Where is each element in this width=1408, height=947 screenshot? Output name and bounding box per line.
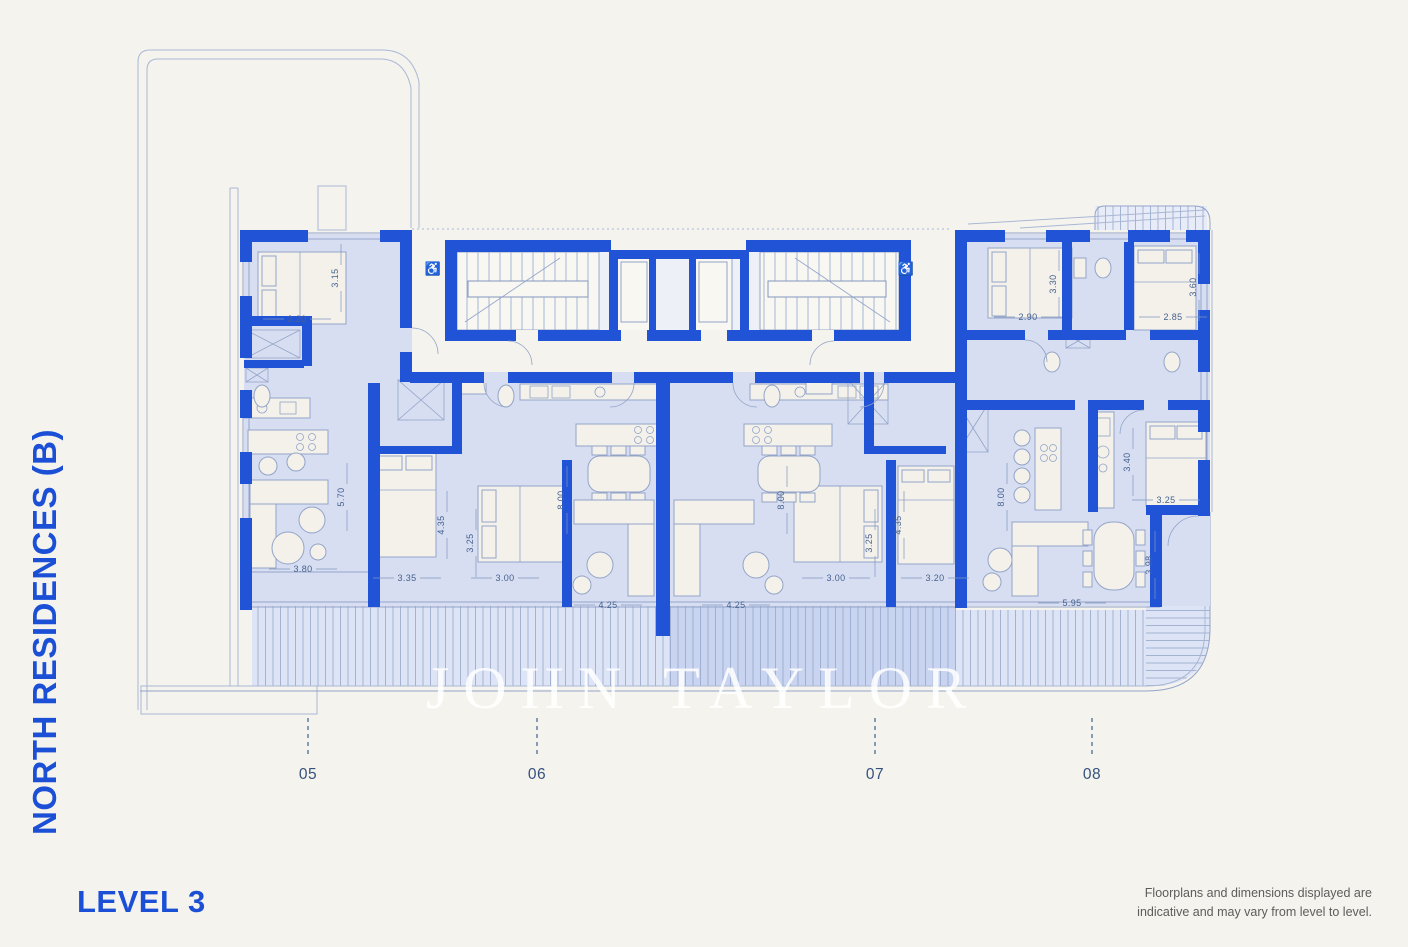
kitchen-counter — [520, 384, 658, 400]
dimension-value: 8.00 — [776, 490, 786, 509]
dimension-value: 3.30 — [1048, 274, 1058, 293]
toilet — [1095, 258, 1111, 278]
dimension-value: 4.35 — [893, 515, 903, 534]
toilet — [764, 385, 780, 407]
dimension-value: 8.00 — [556, 490, 566, 509]
toilet — [1164, 352, 1180, 372]
dimension-value: 5.70 — [336, 487, 346, 506]
unit-markers-layer: 05060708 — [299, 718, 1101, 783]
unit-marker: 07 — [866, 718, 884, 783]
bed — [372, 452, 436, 557]
sink — [806, 382, 832, 394]
floorplan-canvas: 3.203.153.805.703.354.353.253.008.004.25… — [0, 0, 1408, 947]
wheelchair-accessible-icon: ♿ — [425, 261, 441, 276]
dimension-value: 3.00 — [495, 573, 514, 583]
unit-marker: 06 — [528, 718, 546, 783]
kitchen-counter — [244, 398, 310, 418]
dining-table — [758, 446, 820, 502]
dimension-value: 3.80 — [293, 564, 312, 574]
floorplan-page: NORTH RESIDENCES (B) LEVEL 3 Floorplans … — [0, 0, 1408, 947]
stair-core-left — [457, 252, 599, 330]
bed — [988, 248, 1072, 318]
unit-number: 05 — [299, 766, 317, 783]
bed — [478, 486, 566, 562]
bed — [1146, 422, 1206, 506]
bed — [898, 466, 954, 564]
dining-table — [1083, 522, 1145, 590]
dimension-value: 3.25 — [864, 533, 874, 552]
wheelchair-accessible-icon: ♿ — [898, 261, 914, 276]
unit-number: 08 — [1083, 766, 1101, 783]
sink — [1074, 258, 1086, 278]
dimension-value: 3.20 — [925, 573, 944, 583]
dining-table — [588, 446, 650, 502]
dimension-value: 3.25 — [465, 533, 475, 552]
toilet — [254, 385, 270, 407]
unit-number: 07 — [866, 766, 884, 783]
dimension-value: 8.00 — [996, 487, 1006, 506]
kitchen-island — [576, 424, 664, 446]
dimension-value: 3.25 — [1156, 495, 1175, 505]
kitchen-island — [744, 424, 832, 446]
stair-core-right — [760, 252, 899, 330]
dimension-value: 4.35 — [436, 515, 446, 534]
dimension-value: 3.60 — [1188, 277, 1198, 296]
kitchen-island — [1014, 428, 1061, 510]
unit-marker: 05 — [299, 718, 317, 783]
dimension-value: 3.35 — [397, 573, 416, 583]
dimension-value: 3.98 — [1144, 555, 1154, 574]
dimension-value: 4.25 — [598, 600, 617, 610]
sink — [460, 382, 486, 394]
dimension-value: 5.95 — [1062, 598, 1081, 608]
dimension-value: 3.00 — [826, 573, 845, 583]
dimension-value: 4.25 — [726, 600, 745, 610]
toilet — [1044, 352, 1060, 372]
watermark: JOHN TAYLOR — [426, 655, 980, 721]
toilet — [498, 385, 514, 407]
dimension-value: 2.85 — [1163, 312, 1182, 322]
unit-marker: 08 — [1083, 718, 1101, 783]
dimension-value: 2.90 — [1018, 312, 1037, 322]
unit-number: 06 — [528, 766, 546, 783]
dimension-value: 3.15 — [330, 268, 340, 287]
dimension-value: 3.40 — [1122, 452, 1132, 471]
dimension-value: 3.20 — [287, 314, 306, 324]
